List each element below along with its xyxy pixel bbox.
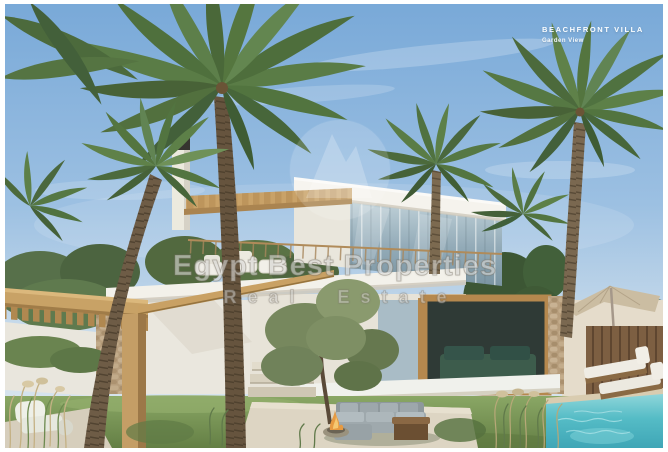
coffee-table — [392, 417, 430, 440]
photo-title: BEACHFRONT VILLA — [542, 25, 644, 34]
villa-rendering — [5, 4, 663, 448]
photo-subtitle: Garden View — [542, 38, 644, 44]
listing-photo-frame: BEACHFRONT VILLA Garden View Egypt Best … — [0, 0, 668, 452]
villa-photo: BEACHFRONT VILLA Garden View Egypt Best … — [5, 4, 663, 448]
photo-caption: BEACHFRONT VILLA Garden View — [542, 25, 644, 44]
watermark-logo — [290, 120, 390, 220]
